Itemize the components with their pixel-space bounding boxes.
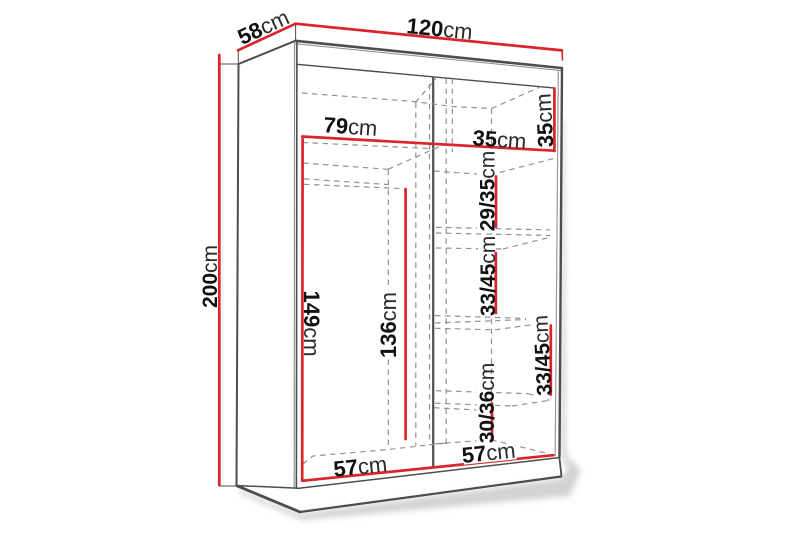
svg-text:79cm: 79cm: [323, 112, 378, 141]
svg-text:33/45cm: 33/45cm: [529, 315, 556, 397]
svg-text:30/36cm: 30/36cm: [476, 363, 499, 444]
svg-text:35cm: 35cm: [531, 93, 559, 148]
svg-text:136cm: 136cm: [376, 292, 401, 358]
svg-text:33/45cm: 33/45cm: [477, 236, 500, 317]
svg-text:29/35cm: 29/35cm: [477, 151, 500, 232]
svg-text:200cm: 200cm: [199, 245, 222, 308]
svg-text:149cm: 149cm: [299, 290, 324, 356]
